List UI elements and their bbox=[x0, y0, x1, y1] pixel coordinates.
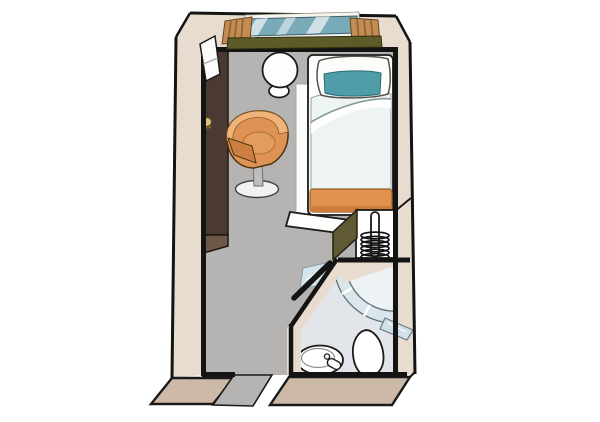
window-sill bbox=[227, 36, 382, 49]
teal-cushion bbox=[324, 71, 381, 96]
bed-side-ledge bbox=[296, 84, 308, 228]
sink-drain bbox=[324, 354, 329, 359]
bottom-right-wall-slab bbox=[270, 377, 410, 405]
floor-plan bbox=[0, 0, 600, 422]
hanger-rail bbox=[371, 212, 379, 257]
window bbox=[222, 12, 382, 49]
floor-plan-page bbox=[0, 0, 600, 422]
table-top bbox=[263, 53, 298, 88]
